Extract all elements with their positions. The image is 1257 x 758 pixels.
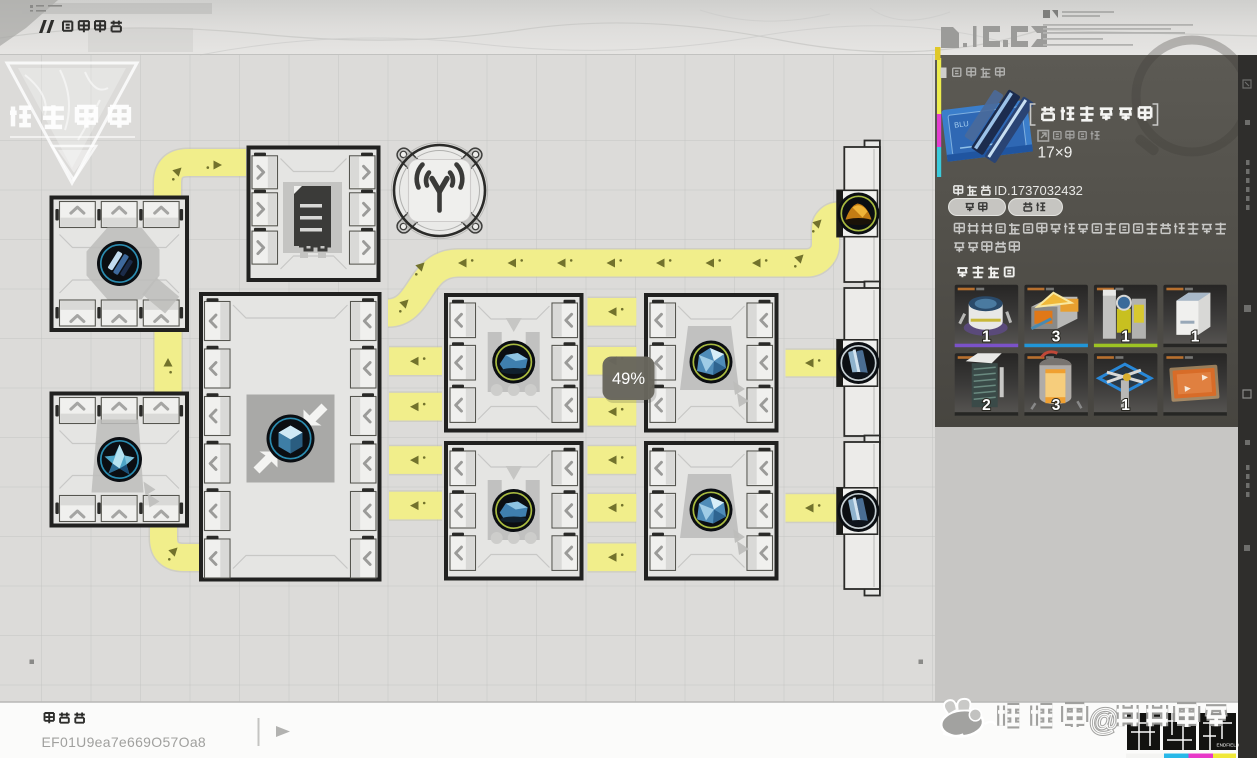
svg-text:2: 2 [982,397,991,414]
svg-text:1: 1 [1121,329,1130,346]
svg-text:3: 3 [1052,397,1061,414]
svg-text:49%: 49% [612,370,645,388]
svg-text:@: @ [1089,704,1119,737]
svg-text:3: 3 [1052,329,1061,346]
svg-text:1: 1 [982,329,991,346]
svg-text:BLU: BLU [954,119,970,130]
svg-text:1: 1 [1191,329,1200,346]
svg-text:17×9: 17×9 [1038,145,1073,162]
svg-text:ID.1737032432: ID.1737032432 [994,183,1083,198]
svg-text:ENDFIELD: ENDFIELD [1217,743,1240,748]
svg-text:1: 1 [1121,397,1130,414]
svg-text:EF01U9ea7e669O57Oa8: EF01U9ea7e669O57Oa8 [42,734,207,750]
